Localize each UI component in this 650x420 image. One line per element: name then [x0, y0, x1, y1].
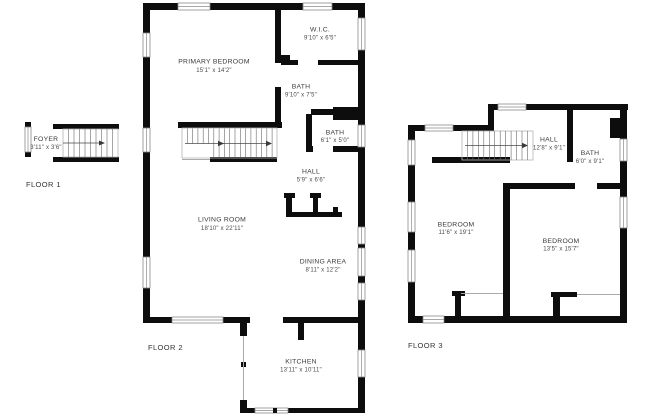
window: [498, 104, 526, 110]
room-dims: 6'0" x 9'1": [576, 159, 604, 165]
room-label: BATH: [326, 130, 345, 137]
window: [408, 250, 415, 282]
room-dims: 8'11" x 12'2": [305, 268, 340, 274]
window: [408, 140, 415, 165]
room-label: PRIMARY BEDROOM: [178, 59, 250, 66]
room-label: LIVING ROOM: [198, 217, 246, 224]
staircase: [182, 128, 277, 160]
room-dims: 9'10" x 7'5": [285, 93, 317, 99]
room-label: BATH: [581, 150, 600, 157]
stair-direction-arrow: [522, 143, 528, 148]
room-label: W.I.C.: [310, 27, 330, 34]
staircase: [63, 129, 118, 157]
stair-direction-arrow: [266, 141, 272, 146]
room-dims: 13'5" x 15'7": [543, 247, 579, 253]
floor-3-room-labels: HALL 12'8" x 9'1" BATH 6'0" x 9'1" BEDRO…: [438, 137, 605, 253]
window: [358, 227, 365, 244]
window: [620, 197, 627, 228]
room-dims: 9'10" x 6'5": [304, 36, 336, 42]
window: [178, 3, 210, 10]
floor-1-plan: FOYER 3'11" x 3'6" FLOOR 1: [25, 122, 119, 189]
room-label: FOYER: [34, 136, 59, 143]
window: [358, 248, 365, 276]
room-label: HALL: [540, 137, 558, 144]
room-label: BATH: [292, 84, 311, 91]
window: [358, 18, 365, 50]
room-label: KITCHEN: [285, 359, 317, 366]
window: [358, 283, 365, 300]
window: [172, 317, 223, 323]
window: [255, 408, 288, 413]
floorplan-canvas: FOYER 3'11" x 3'6" FLOOR 1: [0, 0, 650, 420]
window: [358, 125, 365, 147]
room-dims: 18'10" x 22'11": [201, 226, 243, 232]
window: [143, 257, 150, 288]
window: [143, 128, 150, 152]
floorplan-page: FOYER 3'11" x 3'6" FLOOR 1: [0, 0, 650, 420]
window: [408, 202, 415, 232]
window: [143, 33, 150, 57]
room-dims: 5'9" x 6'6": [297, 178, 325, 184]
stair-direction-arrow: [218, 141, 224, 146]
room-label: DINING AREA: [300, 259, 347, 266]
staircase: [462, 131, 533, 160]
room-dims: 15'1" x 14'2": [196, 68, 232, 74]
room-dims: 13'11" x 10'11": [280, 368, 322, 374]
window: [423, 316, 444, 323]
floor-2-label: FLOOR 2: [148, 343, 183, 352]
room-label: BEDROOM: [438, 222, 475, 229]
floor-2-plan: PRIMARY BEDROOM 15'1" x 14'2" W.I.C. 9'1…: [143, 3, 365, 413]
room-dims: 3'11" x 3'6": [30, 145, 62, 151]
room-label: HALL: [302, 169, 320, 176]
floor-3-plan: HALL 12'8" x 9'1" BATH 6'0" x 9'1" BEDRO…: [408, 104, 628, 350]
window: [303, 3, 332, 10]
window: [425, 125, 453, 131]
room-dims: 12'8" x 9'1": [533, 146, 565, 152]
room-dims: 11'6" x 19'1": [438, 230, 473, 236]
floor-3-windows: [408, 104, 627, 323]
floor-3-walls: [408, 104, 628, 323]
floor-1-label: FLOOR 1: [26, 180, 61, 189]
window: [358, 350, 365, 377]
floor-3-label: FLOOR 3: [408, 341, 443, 350]
stair-direction-arrow: [99, 141, 105, 146]
window: [620, 139, 627, 161]
room-dims: 6'1" x 5'0": [321, 138, 349, 144]
room-label: BEDROOM: [543, 238, 580, 245]
